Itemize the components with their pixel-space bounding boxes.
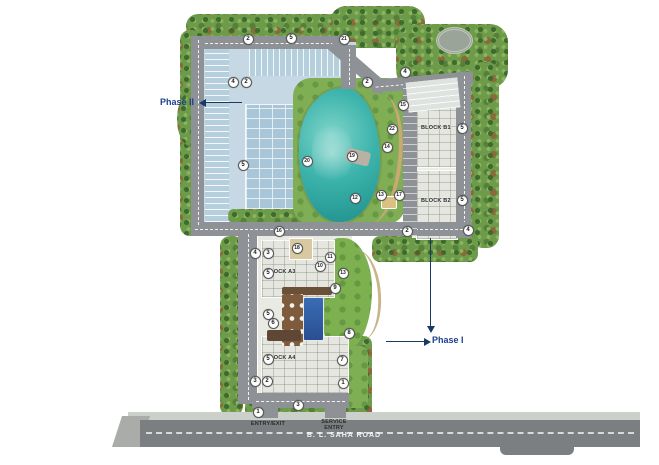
amenity-marker-2: 2 <box>262 376 273 387</box>
amenity-marker-16: 16 <box>274 226 285 237</box>
amenity-marker-5: 5 <box>286 33 297 44</box>
amenity-marker-4: 4 <box>250 248 261 259</box>
amenity-marker-4: 4 <box>228 77 239 88</box>
amenity-marker-5: 5 <box>238 160 249 171</box>
amenity-marker-2: 2 <box>402 226 413 237</box>
amenity-marker-20: 20 <box>302 156 313 167</box>
amenity-marker-2: 2 <box>243 34 254 45</box>
amenity-marker-8: 8 <box>344 328 355 339</box>
amenity-marker-4: 4 <box>400 67 411 78</box>
amenity-marker-13: 13 <box>376 190 387 201</box>
amenity-marker-1: 1 <box>253 407 264 418</box>
amenity-marker-17: 17 <box>394 190 405 201</box>
amenity-marker-14: 14 <box>382 142 393 153</box>
amenity-marker-1: 1 <box>338 378 349 389</box>
amenity-marker-11: 11 <box>325 252 336 263</box>
site-plan-map: Phase II Phase I ENTRY/EXIT SERVICE ENTR… <box>0 0 659 465</box>
amenity-marker-13: 13 <box>338 268 349 279</box>
amenity-marker-2: 2 <box>362 77 373 88</box>
amenity-marker-6: 6 <box>268 318 279 329</box>
amenity-marker-12: 12 <box>350 193 361 204</box>
marker-layer: 2521422415221419205121317552416184311101… <box>0 0 659 465</box>
amenity-marker-19: 19 <box>347 151 358 162</box>
amenity-marker-22: 22 <box>387 124 398 135</box>
amenity-marker-5: 5 <box>457 195 468 206</box>
amenity-marker-9: 9 <box>330 283 341 294</box>
amenity-marker-5: 5 <box>457 123 468 134</box>
amenity-marker-3: 3 <box>250 376 261 387</box>
amenity-marker-3: 3 <box>293 400 304 411</box>
amenity-marker-21: 21 <box>339 34 350 45</box>
amenity-marker-5: 5 <box>263 268 274 279</box>
amenity-marker-4: 4 <box>463 225 474 236</box>
amenity-marker-15: 15 <box>398 100 409 111</box>
amenity-marker-18: 18 <box>292 243 303 254</box>
amenity-marker-10: 10 <box>315 261 326 272</box>
amenity-marker-7: 7 <box>337 355 348 366</box>
amenity-marker-5: 5 <box>263 354 274 365</box>
amenity-marker-2: 2 <box>241 77 252 88</box>
amenity-marker-3: 3 <box>263 248 274 259</box>
